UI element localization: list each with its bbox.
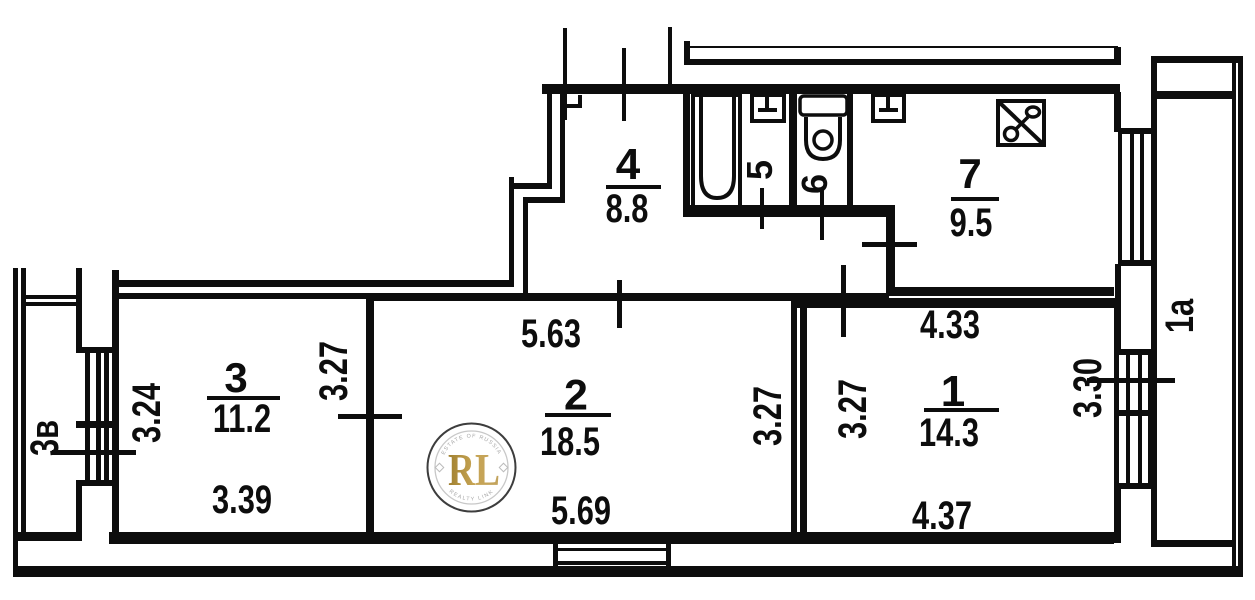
svg-text:RL: RL [448,444,500,495]
